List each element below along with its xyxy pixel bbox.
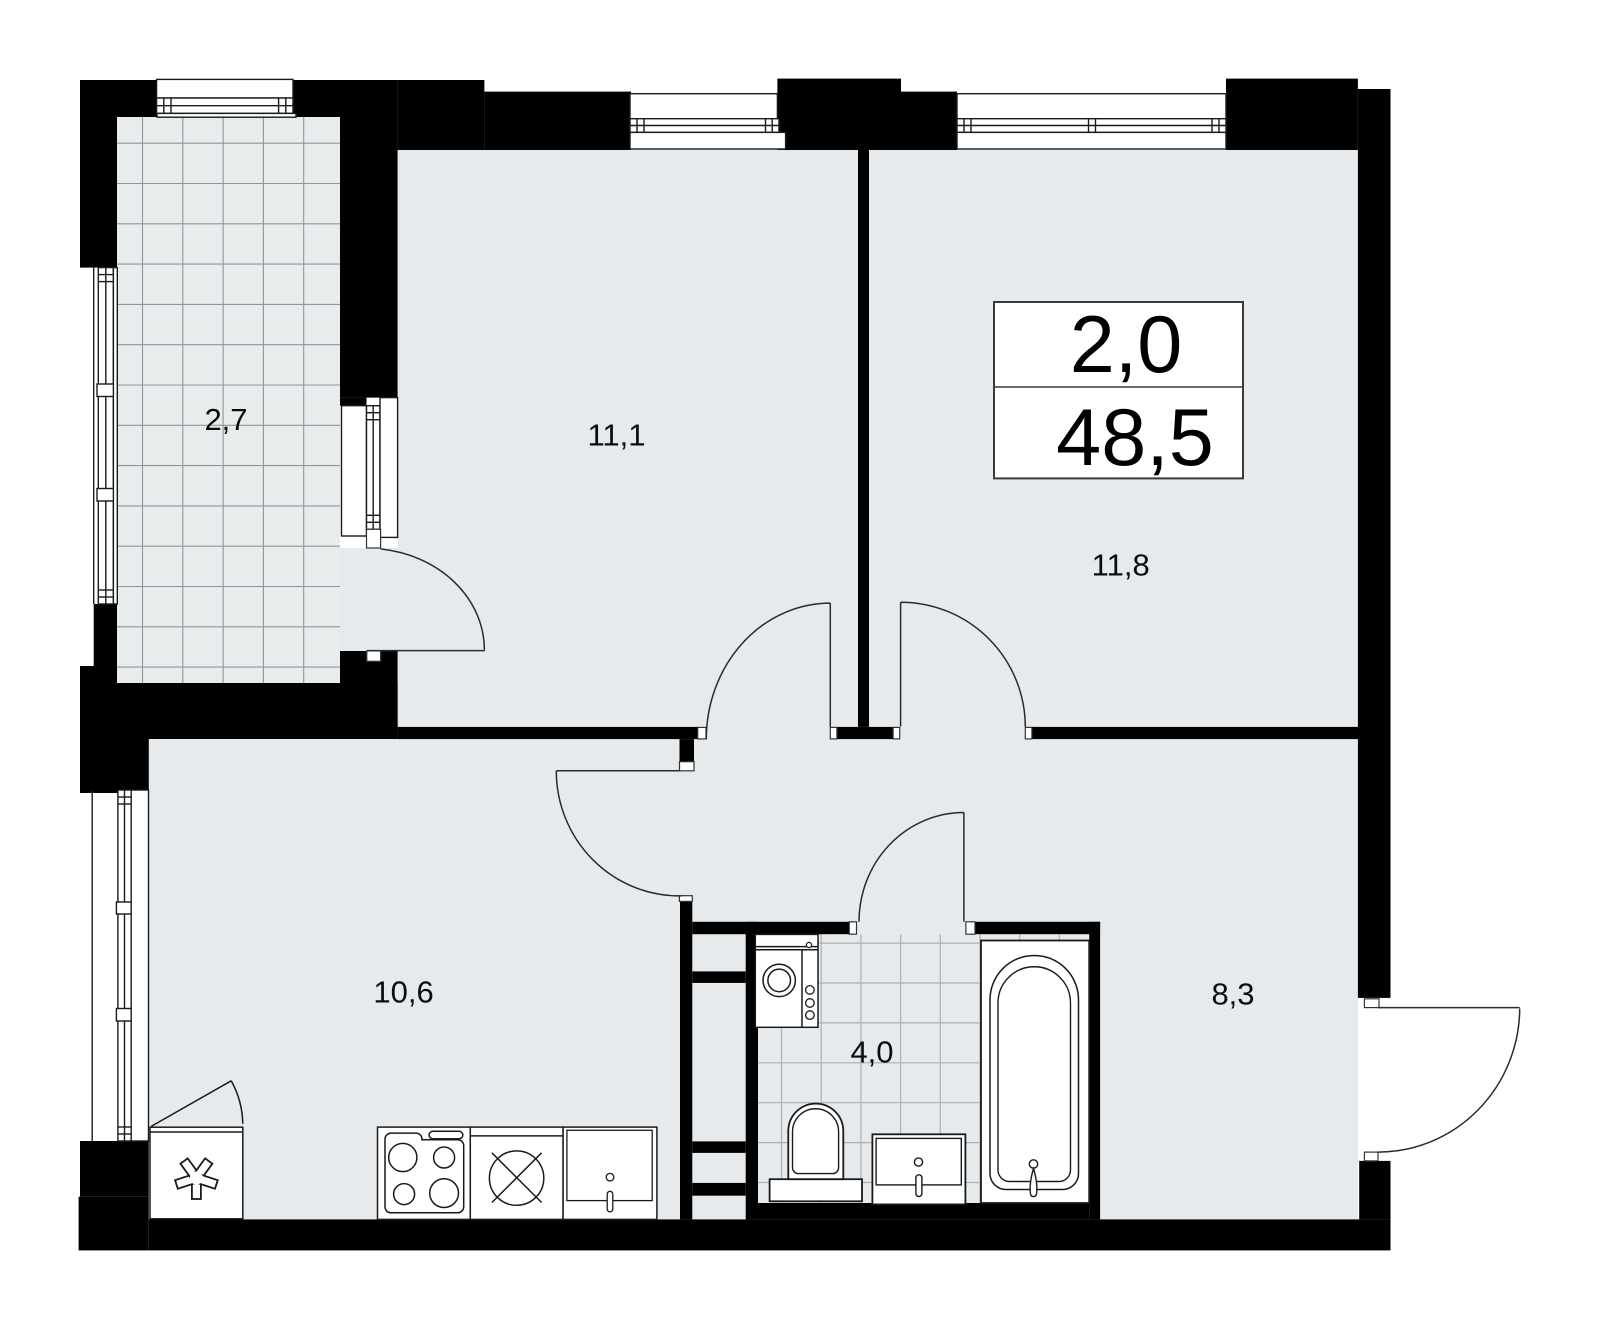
svg-text:2,0: 2,0 <box>1070 300 1183 390</box>
svg-text:8,3: 8,3 <box>1211 977 1254 1012</box>
svg-text:10,6: 10,6 <box>373 975 433 1010</box>
svg-text:2,7: 2,7 <box>204 402 247 437</box>
svg-text:11,8: 11,8 <box>1092 548 1150 583</box>
svg-text:11,1: 11,1 <box>587 418 645 453</box>
svg-text:4,0: 4,0 <box>850 1035 893 1070</box>
svg-text:48,5: 48,5 <box>1056 393 1214 483</box>
